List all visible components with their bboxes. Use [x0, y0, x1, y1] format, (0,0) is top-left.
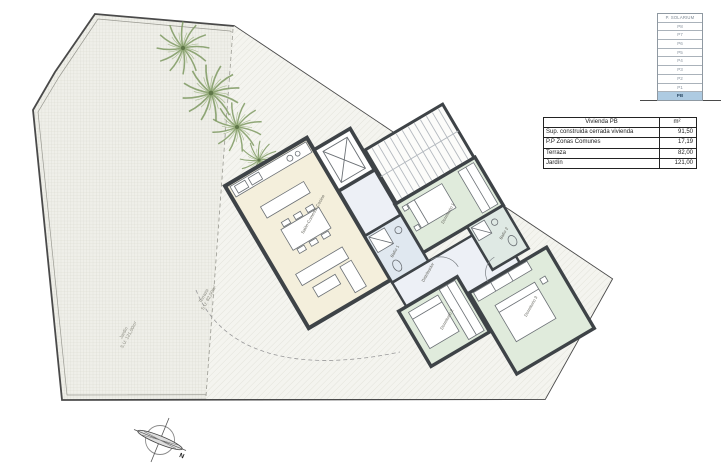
table-row: Jardín 121,00 — [544, 158, 696, 168]
table-row: P.P Zonas Comunes 17,19 — [544, 137, 696, 147]
areas-table: Vivienda PB m² Sup. construida cerrada v… — [543, 117, 697, 169]
table-row: Sup. construida cerrada vivienda 91,50 — [544, 127, 696, 137]
compass-needle — [136, 427, 184, 452]
compass-north-label: N — [178, 452, 185, 460]
floor-stack-header: P. SOLARIUM — [658, 14, 702, 22]
floor-row-p3: P3 — [658, 65, 702, 74]
floor-row-p2: P2 — [658, 74, 702, 83]
floor-level-indicator: P. SOLARIUM P8 P7 P6 P5 P4 P3 P2 P1 PB — [657, 13, 703, 101]
floor-row-p7: P7 — [658, 30, 702, 39]
floor-row-p5: P5 — [658, 48, 702, 57]
floor-row-pb-active: PB — [658, 91, 702, 100]
areas-table-title: Vivienda PB — [544, 118, 659, 127]
floor-row-p8: P8 — [658, 22, 702, 31]
areas-table-header: Vivienda PB m² — [544, 118, 696, 127]
compass-rose: N — [134, 418, 186, 462]
site-plan-drawing: Salón-Comedor-Cocina Dormitorio 1 Baño 1… — [0, 0, 721, 468]
areas-table-unit: m² — [659, 118, 696, 127]
floor-row-p1: P1 — [658, 83, 702, 92]
floor-row-p4: P4 — [658, 56, 702, 65]
table-row: Terraza 82,00 — [544, 148, 696, 158]
floor-plan-sheet: Salón-Comedor-Cocina Dormitorio 1 Baño 1… — [0, 0, 721, 468]
floor-row-p6: P6 — [658, 39, 702, 48]
